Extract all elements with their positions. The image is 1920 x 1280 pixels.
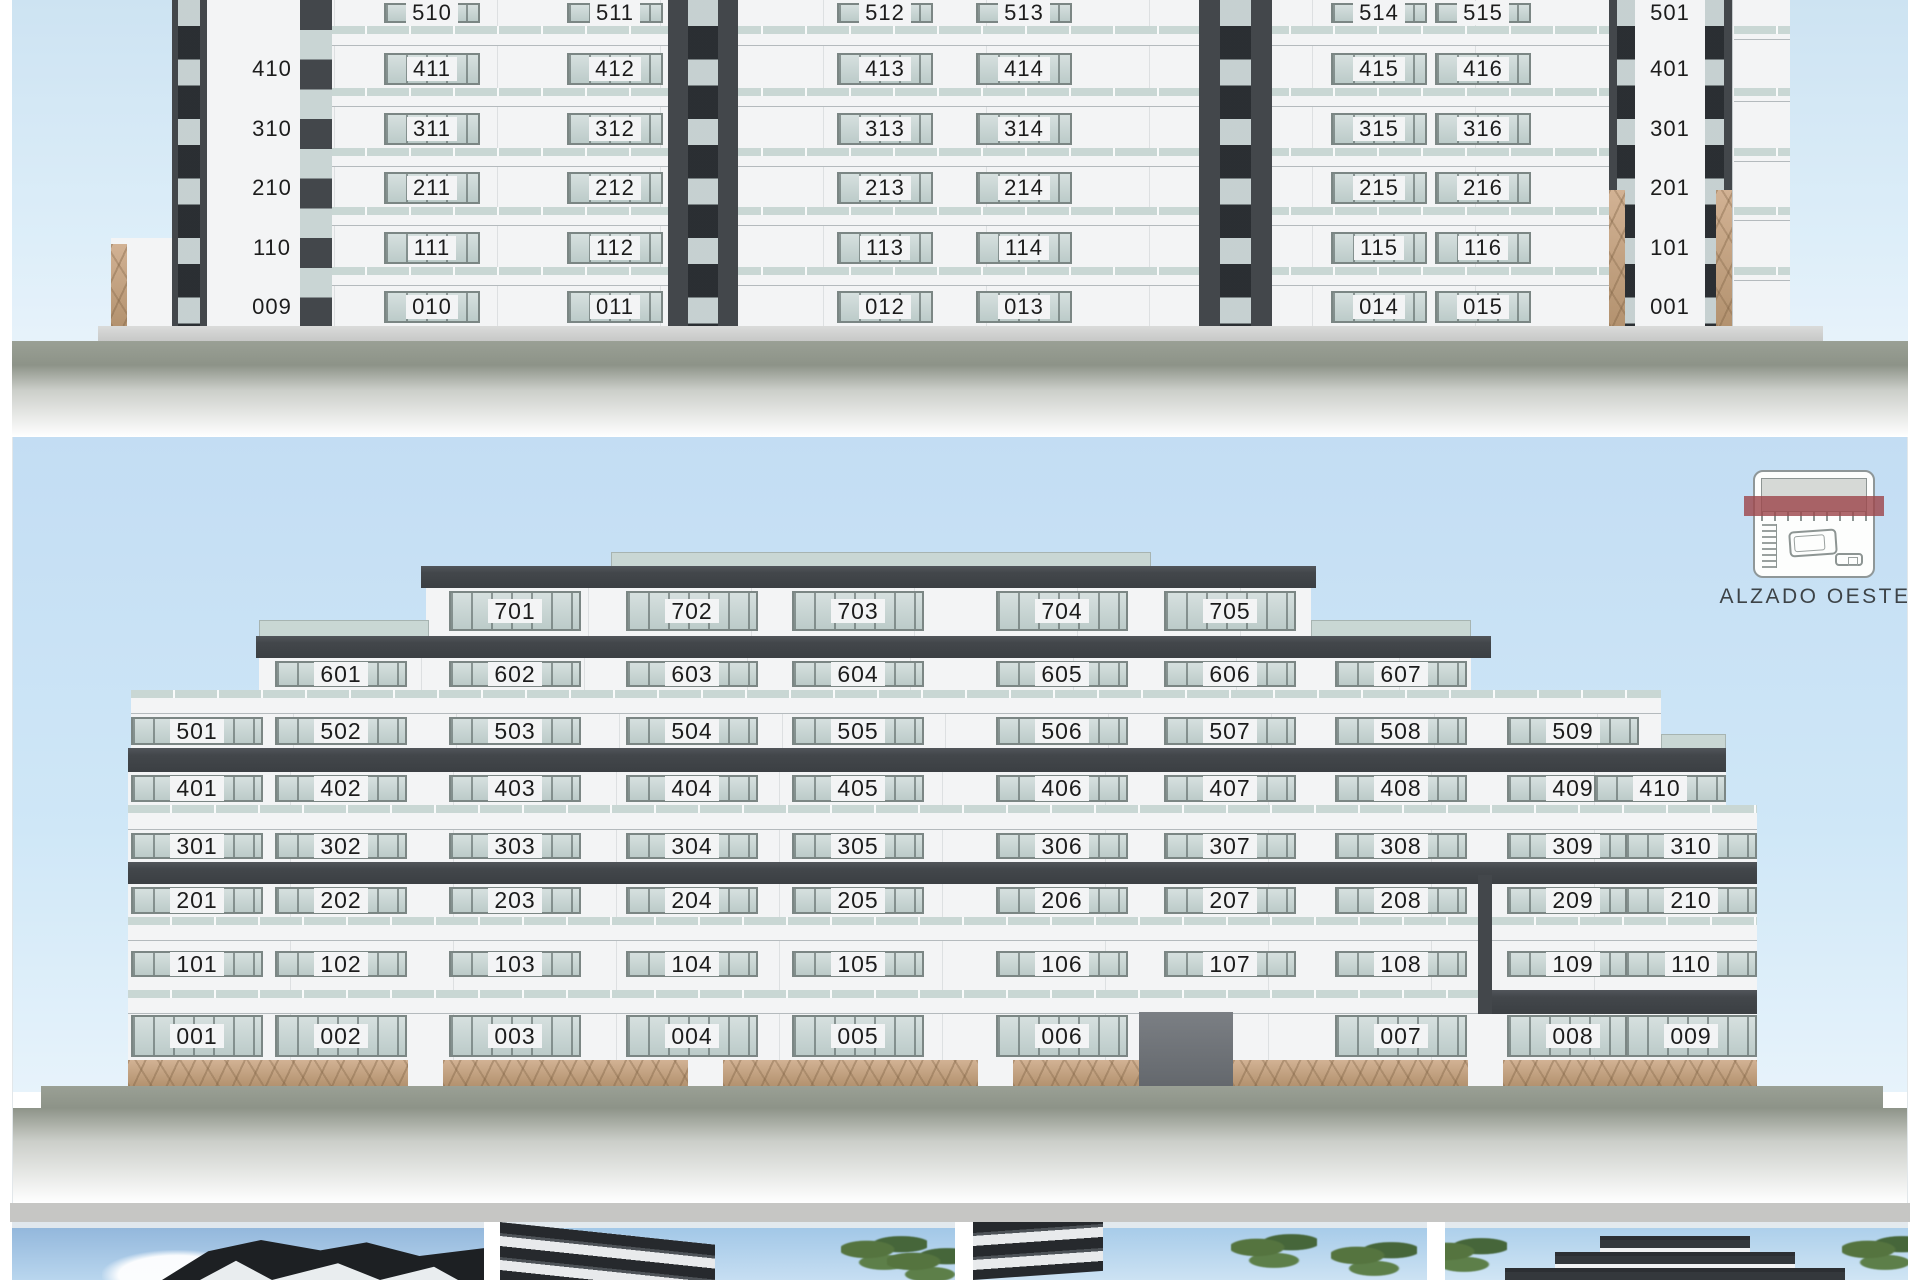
palm-tree: [1445, 1228, 1507, 1280]
unit-cell-216: 216: [1435, 169, 1531, 207]
thumbnail-render-2[interactable]: [500, 1222, 955, 1280]
unit-cell-103: 103: [449, 948, 581, 980]
unit-number: 115: [1354, 236, 1404, 259]
unit-cell-105: 105: [792, 948, 924, 980]
stair-tower-left: [172, 0, 207, 326]
unit-number: 310: [1664, 834, 1717, 858]
unit-number: 109: [1546, 952, 1599, 976]
unit-cell-402: 402: [275, 772, 407, 805]
unit-number: 512: [859, 1, 911, 24]
west-elevation-building: 7017027037047056016026036046056066075015…: [128, 552, 1757, 1086]
garage-door: [1139, 1012, 1233, 1086]
core-windows: [1220, 0, 1251, 326]
unit-cell-604: 604: [792, 658, 924, 690]
unit-number: 603: [665, 662, 718, 686]
ground-slab: [98, 326, 1823, 341]
unit-cell-412: 412: [567, 50, 663, 88]
unit-number: 501: [170, 719, 223, 743]
unit-number: 013: [998, 295, 1050, 318]
unit-cell-008: 008: [1507, 1012, 1639, 1060]
ground-fade: [13, 1108, 1908, 1203]
unit-cell-512: 512: [837, 0, 933, 26]
unit-cell-405: 405: [792, 772, 924, 805]
unit-cell-211: 211: [384, 169, 480, 207]
unit-number: 215: [1353, 176, 1405, 199]
unit-cell-112: 112: [567, 229, 663, 267]
unit-number: 402: [314, 776, 367, 800]
unit-number: 101: [1644, 236, 1696, 259]
unit-cell-704: 704: [996, 588, 1128, 634]
terrace-railing: [1661, 734, 1726, 748]
stepped-building-base: [1505, 1268, 1845, 1280]
unit-cell-315: 315: [1331, 110, 1427, 148]
palm-tree: [1231, 1224, 1317, 1276]
unit-cell-001: 001: [131, 1012, 263, 1060]
unit-number: 705: [1203, 599, 1256, 623]
unit-cell-506: 506: [996, 714, 1128, 748]
stair-windows: [178, 0, 200, 326]
unit-number: 409: [1546, 776, 1599, 800]
wing-balcony: [1734, 267, 1790, 281]
palm-tree: [887, 1238, 955, 1280]
unit-number: 006: [1035, 1024, 1088, 1048]
unit-number: 301: [1644, 117, 1696, 140]
unit-number: 012: [859, 295, 911, 318]
unit-cell-203: 203: [449, 884, 581, 917]
unit-number: 411: [407, 57, 457, 80]
unit-number: 415: [1353, 57, 1405, 80]
top-elevation-panel: 5105115125135145155014104114124134144154…: [12, 0, 1908, 437]
unit-number: 301: [170, 834, 223, 858]
unit-number: 008: [1546, 1024, 1599, 1048]
hatch-marks: [1762, 524, 1777, 568]
unit-cell-212: 212: [567, 169, 663, 207]
unit-number: 307: [1203, 834, 1256, 858]
balcony-band: [131, 690, 1661, 714]
unit-cell-307: 307: [1164, 830, 1296, 862]
unit-number: 204: [665, 888, 718, 912]
unit-number: 501: [1644, 1, 1696, 24]
unit-number: 407: [1203, 776, 1256, 800]
unit-number: 505: [831, 719, 884, 743]
ground-fade: [12, 365, 1908, 437]
unit-cell-201: 201: [131, 884, 263, 917]
unit-number: 015: [1457, 295, 1509, 318]
thumbnail-render-3[interactable]: [973, 1222, 1427, 1280]
unit-number: 701: [488, 599, 541, 623]
unit-cell-413: 413: [837, 50, 933, 88]
unit-cell-201: 201: [1634, 169, 1706, 207]
unit-cell-110: 110: [1625, 948, 1757, 980]
unit-number: 206: [1035, 888, 1088, 912]
unit-number: 209: [1546, 888, 1599, 912]
building-edge: [973, 1222, 1103, 1280]
unit-number: 104: [665, 952, 718, 976]
unit-number: 506: [1035, 719, 1088, 743]
unit-cell-705: 705: [1164, 588, 1296, 634]
fascia-band: [1491, 990, 1757, 1014]
roof-cap: [421, 566, 1316, 588]
unit-cell-101: 101: [131, 948, 263, 980]
unit-number: 511: [590, 1, 640, 24]
unit-number: 315: [1353, 117, 1405, 140]
unit-number: 406: [1035, 776, 1088, 800]
unit-number: 205: [831, 888, 884, 912]
unit-number: 202: [314, 888, 367, 912]
unit-number: 606: [1203, 662, 1256, 686]
elevation-highlight-band: [1744, 496, 1884, 516]
stone-wall: [1503, 1060, 1757, 1086]
unit-number: 107: [1203, 952, 1256, 976]
wing-balcony: [1734, 88, 1790, 102]
unit-cell-301: 301: [1634, 110, 1706, 148]
unit-cell-009: 009: [1625, 1012, 1757, 1060]
terrace-railing: [259, 620, 429, 636]
unit-number: 507: [1203, 719, 1256, 743]
unit-cell-104: 104: [626, 948, 758, 980]
fascia-band: [256, 636, 1491, 658]
unit-cell-002: 002: [275, 1012, 407, 1060]
unit-cell-513: 513: [976, 0, 1072, 26]
unit-cell-408: 408: [1335, 772, 1467, 805]
unit-number: 502: [314, 719, 367, 743]
unit-number: 001: [1644, 295, 1696, 318]
unit-cell-701: 701: [449, 588, 581, 634]
unit-number: 704: [1035, 599, 1088, 623]
unit-cell-009: 009: [237, 288, 307, 326]
west-elevation-panel: 7017027037047056016026036046056066075015…: [12, 437, 1908, 1203]
unit-number: 003: [488, 1024, 541, 1048]
unit-number: 405: [831, 776, 884, 800]
unit-number: 414: [998, 57, 1050, 80]
unit-cell-504: 504: [626, 714, 758, 748]
unit-cell-215: 215: [1331, 169, 1427, 207]
unit-number: 110: [1665, 952, 1717, 976]
unit-number: 404: [665, 776, 718, 800]
fascia-band: [128, 862, 1757, 884]
stone-wall: [443, 1060, 688, 1086]
unit-cell-012: 012: [837, 288, 933, 326]
fascia-band: [128, 748, 1726, 772]
facade-closeup: [500, 1222, 715, 1280]
unit-number: 208: [1374, 888, 1427, 912]
unit-number: 009: [246, 295, 298, 318]
unit-cell-303: 303: [449, 830, 581, 862]
unit-cell-601: 601: [275, 658, 407, 690]
unit-number: 304: [665, 834, 718, 858]
unit-number: 310: [246, 117, 298, 140]
unit-number: 412: [589, 57, 641, 80]
unit-number: 113: [860, 236, 910, 259]
core-column: [1199, 0, 1272, 326]
unit-cell-116: 116: [1435, 229, 1531, 267]
unit-number: 116: [1458, 236, 1508, 259]
unit-number: 306: [1035, 834, 1088, 858]
unit-cell-004: 004: [626, 1012, 758, 1060]
unit-number: 311: [407, 117, 457, 140]
unit-number: 510: [406, 1, 458, 24]
unit-number: 207: [1203, 888, 1256, 912]
unit-number: 213: [859, 176, 911, 199]
roof-railing: [611, 552, 1151, 566]
unit-number: 605: [1035, 662, 1088, 686]
unit-number: 216: [1457, 176, 1509, 199]
unit-cell-501: 501: [1634, 0, 1706, 26]
stair-checker-left: [300, 0, 332, 326]
unit-number: 214: [998, 176, 1050, 199]
unit-number: 009: [1664, 1024, 1717, 1048]
elevation-title: ALZADO OESTE: [1695, 585, 1908, 609]
unit-number: 403: [488, 776, 541, 800]
unit-number: 203: [488, 888, 541, 912]
balcony-band: [235, 207, 1715, 226]
unit-cell-110: 110: [237, 229, 307, 267]
unit-number: 703: [831, 599, 884, 623]
unit-cell-206: 206: [996, 884, 1128, 917]
unit-cell-415: 415: [1331, 50, 1427, 88]
unit-cell-703: 703: [792, 588, 924, 634]
unit-cell-202: 202: [275, 884, 407, 917]
unit-number: 316: [1457, 117, 1509, 140]
unit-number: 514: [1353, 1, 1405, 24]
unit-cell-404: 404: [626, 772, 758, 805]
unit-cell-312: 312: [567, 110, 663, 148]
unit-number: 509: [1546, 719, 1599, 743]
stone-wall: [1233, 1060, 1468, 1086]
unit-number: 105: [831, 952, 884, 976]
unit-number: 513: [998, 1, 1050, 24]
unit-cell-115: 115: [1331, 229, 1427, 267]
unit-cell-401: 401: [131, 772, 263, 805]
wing-balcony: [1734, 148, 1790, 162]
unit-number: 106: [1035, 952, 1088, 976]
unit-number: 308: [1374, 834, 1427, 858]
unit-number: 010: [406, 295, 458, 318]
balcony-band: [128, 917, 1757, 941]
unit-number: 314: [998, 117, 1050, 140]
ground-band: [41, 1086, 1883, 1108]
top-elevation-building: 5105115125135145155014104114124134144154…: [115, 0, 1790, 326]
unit-cell-503: 503: [449, 714, 581, 748]
unit-number: 508: [1374, 719, 1427, 743]
unit-cell-013: 013: [976, 288, 1072, 326]
unit-cell-403: 403: [449, 772, 581, 805]
unit-number: 210: [1664, 888, 1717, 912]
unit-number: 602: [488, 662, 541, 686]
wing-balcony: [1734, 207, 1790, 221]
unit-cell-302: 302: [275, 830, 407, 862]
unit-number: 110: [247, 236, 297, 259]
unit-number: 211: [407, 176, 457, 199]
core-windows: [688, 0, 718, 326]
unit-cell-308: 308: [1335, 830, 1467, 862]
unit-cell-209: 209: [1507, 884, 1639, 917]
unit-cell-310: 310: [1625, 830, 1757, 862]
unit-number: 210: [246, 176, 298, 199]
unit-cell-007: 007: [1335, 1012, 1467, 1060]
unit-number: 515: [1457, 1, 1509, 24]
unit-cell-108: 108: [1335, 948, 1467, 980]
stone-pillar: [1609, 190, 1625, 326]
unit-number: 004: [665, 1024, 718, 1048]
unit-number: 103: [488, 952, 541, 976]
unit-cell-509: 509: [1507, 714, 1639, 748]
stone-wall: [128, 1060, 408, 1086]
unit-cell-410: 410: [237, 50, 307, 88]
unit-cell-114: 114: [976, 229, 1072, 267]
unit-number: 007: [1374, 1024, 1427, 1048]
unit-cell-101: 101: [1634, 229, 1706, 267]
unit-number: 001: [170, 1024, 223, 1048]
palm-tree: [1842, 1226, 1908, 1278]
stone-pillar: [111, 244, 127, 326]
unit-number: 201: [1644, 176, 1696, 199]
stone-pillar: [1716, 190, 1732, 326]
unit-cell-109: 109: [1507, 948, 1639, 980]
unit-cell-607: 607: [1335, 658, 1467, 690]
unit-cell-205: 205: [792, 884, 924, 917]
unit-cell-011: 011: [567, 288, 663, 326]
stone-wall: [1013, 1060, 1139, 1086]
unit-cell-306: 306: [996, 830, 1128, 862]
unit-number: 503: [488, 719, 541, 743]
unit-cell-414: 414: [976, 50, 1072, 88]
unit-number: 504: [665, 719, 718, 743]
core-stripe: [1478, 875, 1492, 1014]
unit-cell-106: 106: [996, 948, 1128, 980]
unit-number: 014: [1353, 295, 1405, 318]
unit-cell-208: 208: [1335, 884, 1467, 917]
unit-number: 002: [314, 1024, 367, 1048]
unit-number: 011: [590, 295, 640, 318]
unit-cell-001: 001: [1634, 288, 1706, 326]
unit-cell-411: 411: [384, 50, 480, 88]
unit-number: 601: [314, 662, 367, 686]
balcony-band: [235, 26, 1715, 46]
unit-number: 302: [314, 834, 367, 858]
thumbnail-strip: [0, 1222, 1920, 1280]
unit-number: 416: [1457, 57, 1509, 80]
elevation-sheet: 5105115125135145155014104114124134144154…: [0, 0, 1920, 1280]
core-column: [668, 0, 738, 326]
unit-cell-107: 107: [1164, 948, 1296, 980]
unit-number: 408: [1374, 776, 1427, 800]
unit-cell-003: 003: [449, 1012, 581, 1060]
unit-cell-005: 005: [792, 1012, 924, 1060]
label-strip: [1635, 0, 1705, 326]
unit-cell-606: 606: [1164, 658, 1296, 690]
unit-cell-511: 511: [567, 0, 663, 26]
balcony-band: [128, 805, 1757, 830]
unit-number: 201: [170, 888, 223, 912]
unit-cell-213: 213: [837, 169, 933, 207]
unit-cell-111: 111: [384, 229, 480, 267]
unit-cell-514: 514: [1331, 0, 1427, 26]
balcony-band: [128, 990, 1491, 1014]
car-outline: [1835, 553, 1863, 566]
unit-number: 702: [665, 599, 718, 623]
unit-cell-316: 316: [1435, 110, 1531, 148]
unit-cell-505: 505: [792, 714, 924, 748]
stepped-building-top: [1600, 1236, 1750, 1252]
unit-number: 401: [1644, 57, 1696, 80]
unit-cell-214: 214: [976, 169, 1072, 207]
ground-band: [12, 341, 1908, 365]
unit-number: 410: [246, 57, 298, 80]
unit-number: 111: [408, 236, 456, 259]
unit-number: 114: [999, 236, 1049, 259]
photo-edge: [1445, 1222, 1908, 1228]
unit-cell-313: 313: [837, 110, 933, 148]
unit-number: 212: [589, 176, 641, 199]
unit-number: 305: [831, 834, 884, 858]
unit-cell-311: 311: [384, 110, 480, 148]
unit-number: 309: [1546, 834, 1599, 858]
unit-cell-014: 014: [1331, 288, 1427, 326]
palm-tree: [1331, 1232, 1417, 1280]
unit-cell-314: 314: [976, 110, 1072, 148]
balcony-band: [235, 88, 1715, 107]
unit-number: 112: [590, 236, 640, 259]
unit-cell-605: 605: [996, 658, 1128, 690]
unit-cell-602: 602: [449, 658, 581, 690]
thumbnail-render-1[interactable]: [12, 1222, 484, 1280]
unit-cell-015: 015: [1435, 288, 1531, 326]
stone-wall: [723, 1060, 978, 1086]
unit-cell-210: 210: [237, 169, 307, 207]
unit-cell-410: 410: [1594, 772, 1726, 805]
unit-number: 108: [1374, 952, 1427, 976]
unit-cell-507: 507: [1164, 714, 1296, 748]
unit-cell-407: 407: [1164, 772, 1296, 805]
unit-number: 410: [1633, 776, 1686, 800]
unit-cell-301: 301: [131, 830, 263, 862]
unit-number: 401: [170, 776, 223, 800]
unit-number: 413: [859, 57, 911, 80]
stepped-building-mid: [1555, 1252, 1795, 1268]
unit-number: 604: [831, 662, 884, 686]
unit-cell-310: 310: [237, 110, 307, 148]
unit-number: 313: [859, 117, 911, 140]
unit-cell-305: 305: [792, 830, 924, 862]
site-plan-icon: [1753, 470, 1875, 578]
unit-cell-207: 207: [1164, 884, 1296, 917]
unit-number: 005: [831, 1024, 884, 1048]
unit-cell-508: 508: [1335, 714, 1467, 748]
unit-cell-502: 502: [275, 714, 407, 748]
terrace-railing: [1311, 620, 1471, 636]
unit-cell-210: 210: [1625, 884, 1757, 917]
unit-cell-010: 010: [384, 288, 480, 326]
unit-cell-401: 401: [1634, 50, 1706, 88]
unit-cell-204: 204: [626, 884, 758, 917]
pool-outline: [1788, 528, 1838, 557]
unit-cell-406: 406: [996, 772, 1128, 805]
unit-cell-515: 515: [1435, 0, 1531, 26]
unit-cell-603: 603: [626, 658, 758, 690]
unit-cell-113: 113: [837, 229, 933, 267]
thumbnail-render-4[interactable]: [1445, 1222, 1908, 1280]
thumbnail-divider-band: [10, 1203, 1910, 1222]
balcony-band: [235, 267, 1715, 286]
unit-cell-304: 304: [626, 830, 758, 862]
unit-number: 312: [589, 117, 641, 140]
unit-number: 303: [488, 834, 541, 858]
unit-cell-006: 006: [996, 1012, 1128, 1060]
unit-cell-510: 510: [384, 0, 480, 26]
unit-cell-102: 102: [275, 948, 407, 980]
unit-number: 101: [170, 952, 223, 976]
